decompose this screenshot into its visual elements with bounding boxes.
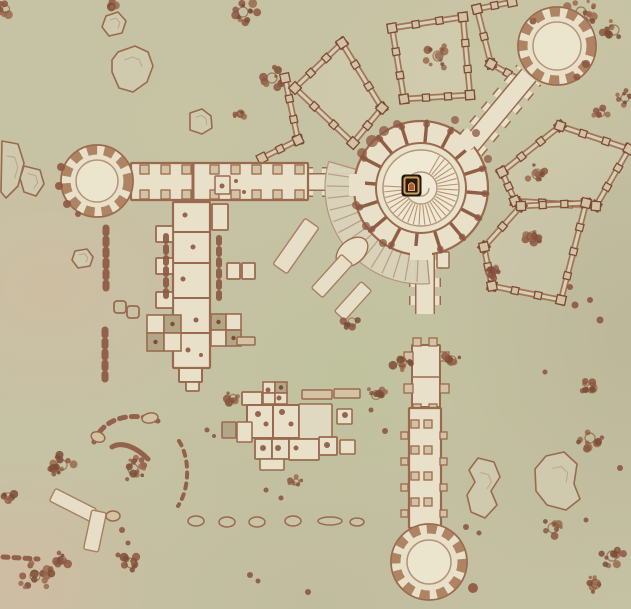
rubble-mound xyxy=(125,455,147,482)
boulder xyxy=(467,458,500,518)
rubble-cluster xyxy=(52,551,72,569)
rubble-cluster xyxy=(1,490,19,504)
passage-room xyxy=(412,345,440,407)
fallen-colonnade xyxy=(178,441,187,506)
ruin-wall xyxy=(49,488,96,521)
ramp xyxy=(334,281,371,320)
rubble-cluster xyxy=(367,386,388,399)
pillar-base xyxy=(350,518,364,526)
ramp xyxy=(311,254,352,297)
foundation xyxy=(127,306,139,318)
rubble-cluster xyxy=(107,0,120,11)
rubble-cluster xyxy=(47,451,77,477)
ruined-enclosure xyxy=(289,37,389,150)
mound-tail xyxy=(112,445,148,459)
local-map[interactable] xyxy=(0,0,631,609)
rubble-cluster xyxy=(543,519,563,540)
pillar-base xyxy=(318,517,342,525)
foundation xyxy=(114,301,126,313)
bench xyxy=(302,390,332,399)
bench xyxy=(237,337,255,345)
south-tower xyxy=(391,524,467,600)
west-tower xyxy=(61,145,133,217)
rubble-cluster xyxy=(231,0,261,26)
bench xyxy=(334,389,360,398)
rubble-cluster xyxy=(591,105,610,118)
rock xyxy=(112,46,153,92)
room xyxy=(289,439,319,460)
northeast-tower xyxy=(518,7,596,85)
ramp xyxy=(273,218,319,274)
room xyxy=(260,459,284,470)
room xyxy=(299,404,332,439)
ruined-enclosure xyxy=(387,12,475,104)
annex xyxy=(242,392,262,405)
room xyxy=(340,440,355,454)
room xyxy=(222,422,236,438)
rock xyxy=(190,109,212,134)
rubble-cluster xyxy=(340,317,361,331)
pillar-base xyxy=(219,517,235,527)
rock xyxy=(72,249,93,268)
debris-dots xyxy=(369,408,389,435)
rock xyxy=(1,141,24,198)
ruined-enclosure xyxy=(496,120,631,212)
rubble-cluster xyxy=(599,19,621,39)
local-map-canvas xyxy=(0,0,631,609)
rubble-cluster xyxy=(18,560,55,589)
annex xyxy=(227,263,240,279)
rubble-cluster xyxy=(586,575,601,594)
rubble-cluster xyxy=(615,88,631,108)
pillar-base xyxy=(285,516,301,526)
hall-extension xyxy=(179,368,202,382)
cell-block xyxy=(147,315,181,351)
rubble-cluster xyxy=(580,378,597,393)
annex xyxy=(437,252,449,268)
annex xyxy=(242,263,255,279)
boulder xyxy=(535,452,580,510)
rock xyxy=(102,12,126,36)
ruined-enclosure xyxy=(478,198,592,306)
rubble-cluster xyxy=(441,352,461,366)
debris-dots xyxy=(247,572,311,595)
cell-block xyxy=(263,382,287,404)
rubble-cluster xyxy=(0,0,13,19)
debris-chain xyxy=(3,557,38,559)
hall-stub xyxy=(186,382,199,391)
rock xyxy=(20,166,44,196)
room xyxy=(273,405,299,438)
rubble-cluster xyxy=(598,547,626,568)
door-map-marker[interactable] xyxy=(402,175,421,196)
rubble-cluster xyxy=(223,391,240,406)
pillar-base xyxy=(188,516,204,526)
room xyxy=(237,422,252,442)
colonnade-knob xyxy=(106,511,120,521)
annex xyxy=(212,204,228,230)
pillar-base xyxy=(249,517,265,527)
rubble-cluster xyxy=(576,430,604,453)
rubble-cluster xyxy=(233,109,248,119)
rubble-cluster xyxy=(287,474,303,486)
rubble-cluster xyxy=(120,553,141,573)
